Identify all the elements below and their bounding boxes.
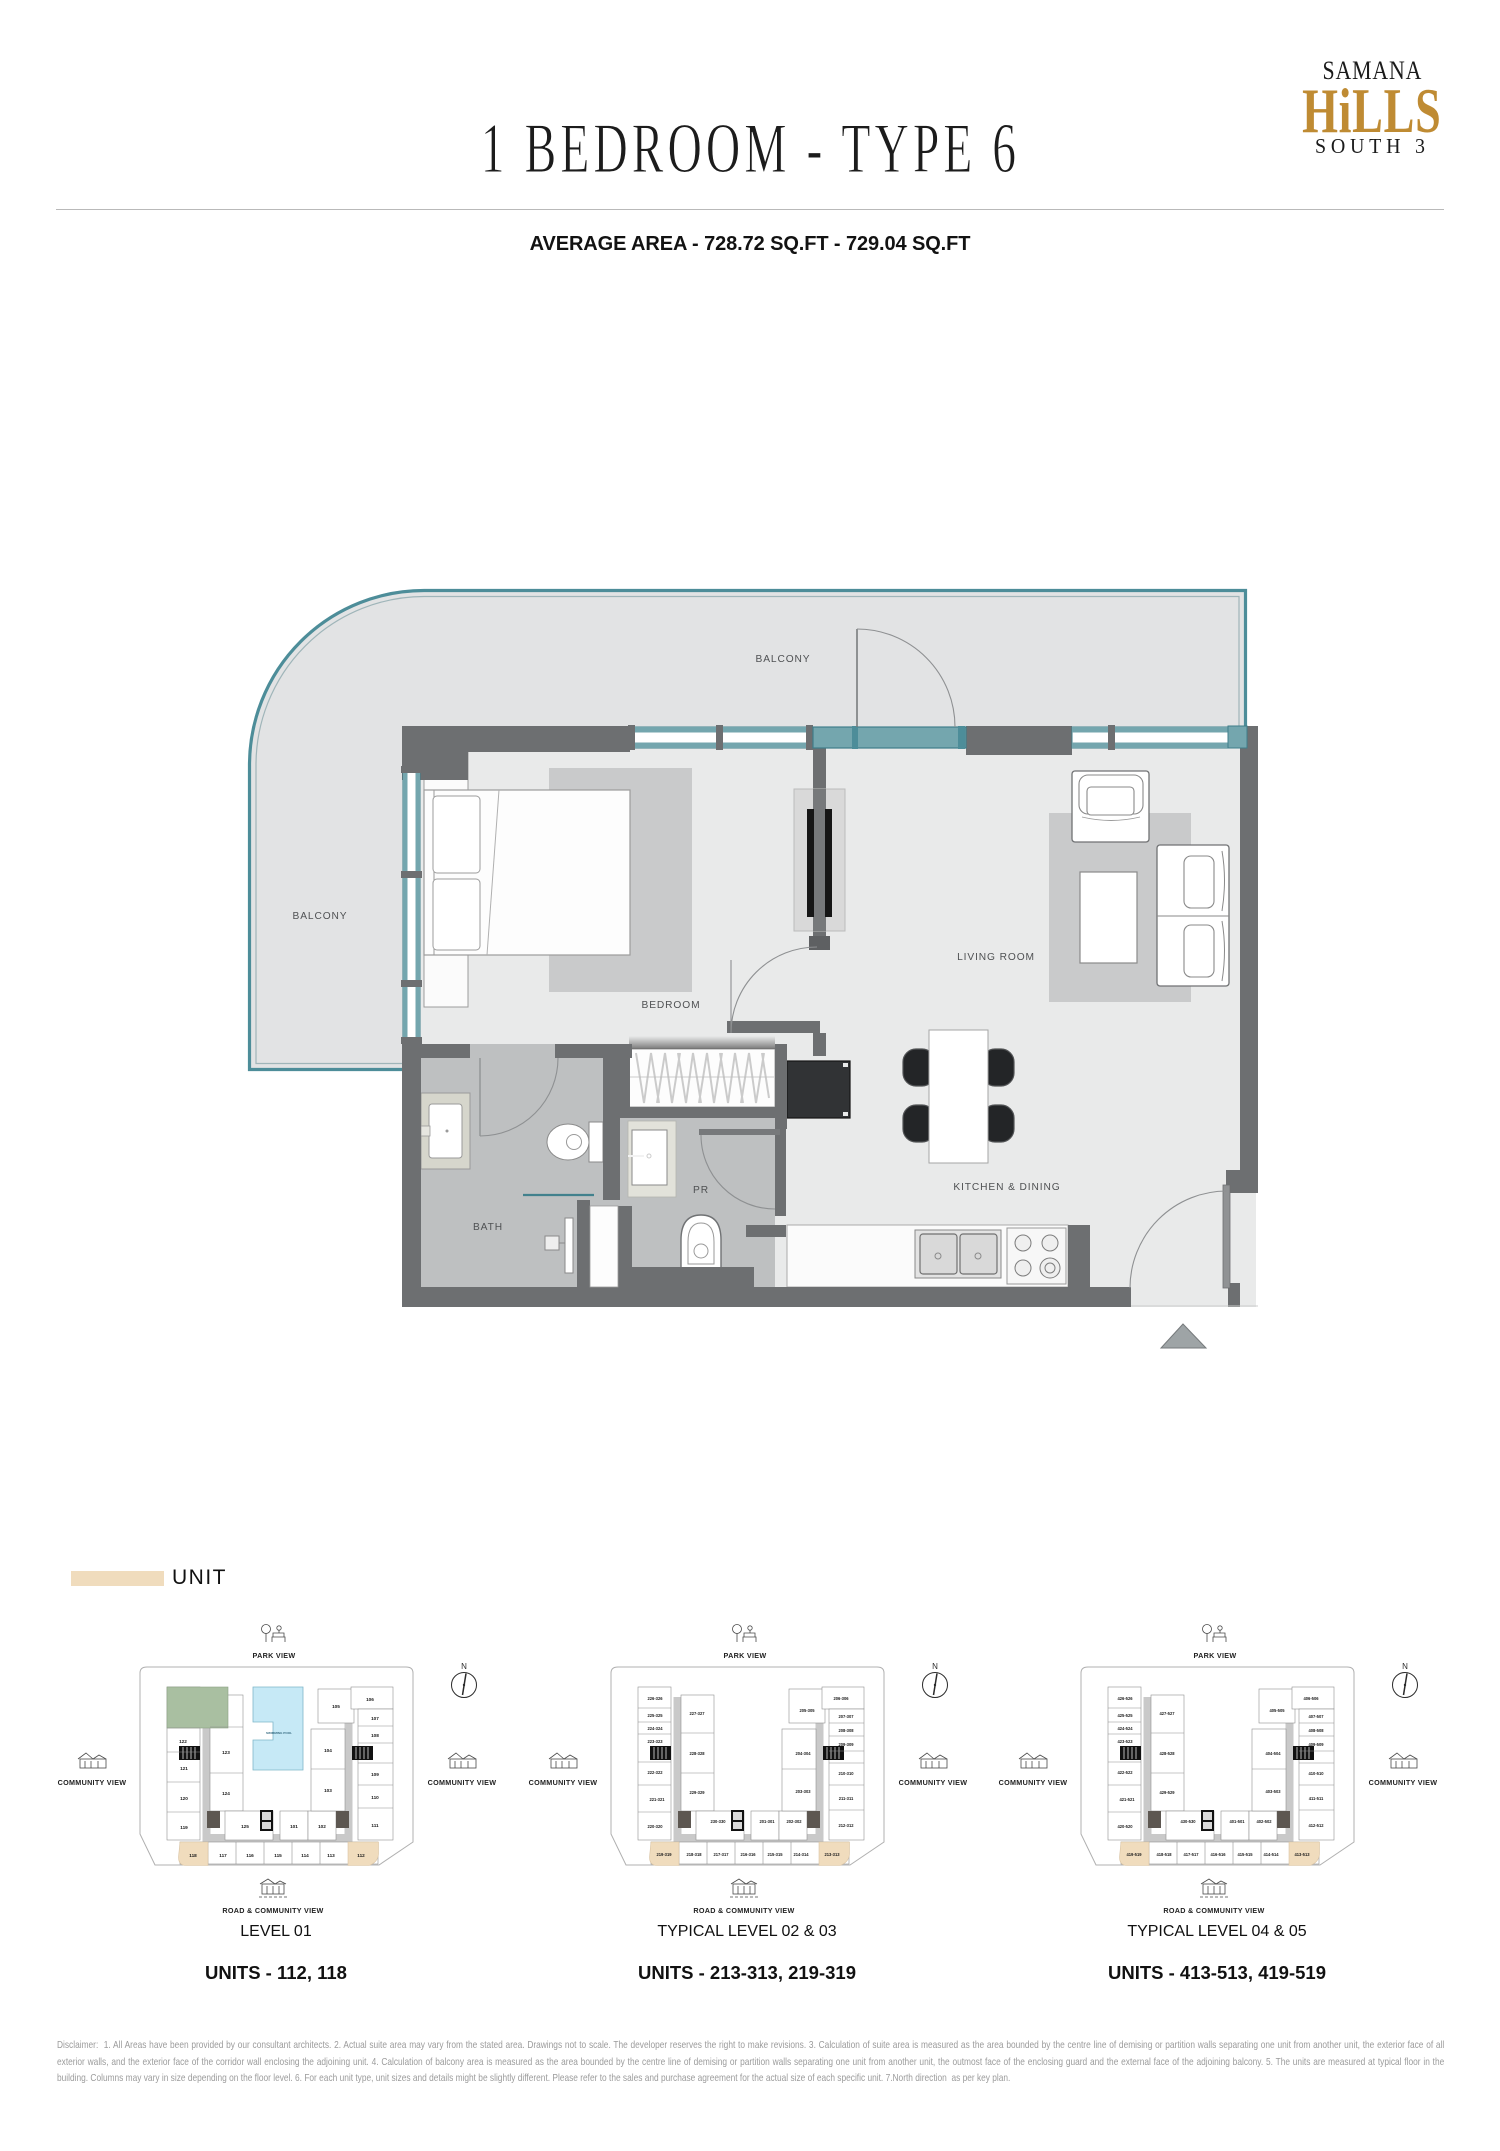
svg-text:109: 109 bbox=[371, 1772, 379, 1777]
svg-text:409-509: 409-509 bbox=[1308, 1742, 1324, 1747]
svg-text:115: 115 bbox=[274, 1853, 282, 1858]
svg-text:415-515: 415-515 bbox=[1237, 1852, 1253, 1857]
svg-text:108: 108 bbox=[371, 1733, 379, 1738]
svg-text:225-325: 225-325 bbox=[647, 1713, 663, 1718]
svg-text:125: 125 bbox=[241, 1824, 249, 1829]
svg-text:403-503: 403-503 bbox=[1265, 1789, 1281, 1794]
svg-text:223-323: 223-323 bbox=[647, 1739, 663, 1744]
svg-text:428-528: 428-528 bbox=[1159, 1751, 1175, 1756]
svg-text:429-529: 429-529 bbox=[1159, 1790, 1175, 1795]
svg-text:413-513: 413-513 bbox=[1294, 1852, 1310, 1857]
svg-text:426-526: 426-526 bbox=[1117, 1696, 1133, 1701]
svg-text:417-517: 417-517 bbox=[1183, 1852, 1199, 1857]
svg-text:419-519: 419-519 bbox=[1126, 1852, 1142, 1857]
svg-text:424-524: 424-524 bbox=[1117, 1726, 1133, 1731]
svg-text:427-527: 427-527 bbox=[1159, 1711, 1175, 1716]
svg-text:112: 112 bbox=[357, 1853, 365, 1858]
svg-text:124: 124 bbox=[222, 1791, 230, 1796]
svg-text:119: 119 bbox=[180, 1825, 188, 1830]
svg-text:KITCHEN & DINING: KITCHEN & DINING bbox=[953, 1182, 1060, 1193]
svg-text:BEDROOM: BEDROOM bbox=[642, 1000, 701, 1011]
svg-text:PR: PR bbox=[693, 1185, 709, 1196]
svg-text:406-506: 406-506 bbox=[1303, 1696, 1319, 1701]
svg-text:205-305: 205-305 bbox=[799, 1708, 815, 1713]
svg-text:106: 106 bbox=[366, 1697, 374, 1702]
svg-text:402-502: 402-502 bbox=[1256, 1819, 1272, 1824]
svg-text:114: 114 bbox=[301, 1853, 309, 1858]
svg-text:418-518: 418-518 bbox=[1156, 1852, 1172, 1857]
svg-text:226-326: 226-326 bbox=[647, 1696, 663, 1701]
svg-text:LIVING ROOM: LIVING ROOM bbox=[957, 952, 1035, 963]
svg-text:BALCONY: BALCONY bbox=[293, 911, 348, 922]
svg-text:113: 113 bbox=[327, 1853, 335, 1858]
svg-text:422-522: 422-522 bbox=[1117, 1770, 1133, 1775]
svg-text:118: 118 bbox=[189, 1853, 197, 1858]
svg-text:121: 121 bbox=[180, 1766, 188, 1771]
svg-text:408-508: 408-508 bbox=[1308, 1728, 1324, 1733]
svg-text:222-322: 222-322 bbox=[647, 1770, 663, 1775]
svg-text:416-516: 416-516 bbox=[1210, 1852, 1226, 1857]
svg-text:107: 107 bbox=[371, 1716, 379, 1721]
svg-text:410-510: 410-510 bbox=[1308, 1771, 1324, 1776]
svg-text:210-310: 210-310 bbox=[838, 1771, 854, 1776]
svg-text:430-530: 430-530 bbox=[1180, 1819, 1196, 1824]
svg-text:229-329: 229-329 bbox=[689, 1790, 705, 1795]
svg-text:423-523: 423-523 bbox=[1117, 1739, 1133, 1744]
svg-text:204-304: 204-304 bbox=[795, 1751, 811, 1756]
svg-text:105: 105 bbox=[332, 1704, 340, 1709]
svg-text:SWIMMING POOL: SWIMMING POOL bbox=[266, 1731, 292, 1735]
svg-text:122: 122 bbox=[179, 1739, 187, 1744]
svg-text:206-306: 206-306 bbox=[833, 1696, 849, 1701]
svg-text:211-311: 211-311 bbox=[839, 1796, 854, 1801]
svg-text:123: 123 bbox=[222, 1750, 230, 1755]
svg-text:BALCONY: BALCONY bbox=[756, 654, 811, 665]
svg-text:218-318: 218-318 bbox=[686, 1852, 702, 1857]
svg-text:221-321: 221-321 bbox=[649, 1797, 665, 1802]
svg-text:203-303: 203-303 bbox=[795, 1789, 811, 1794]
svg-text:101: 101 bbox=[290, 1824, 298, 1829]
svg-text:104: 104 bbox=[324, 1748, 332, 1753]
svg-text:224-324: 224-324 bbox=[647, 1726, 663, 1731]
svg-text:208-308: 208-308 bbox=[838, 1728, 854, 1733]
svg-text:420-520: 420-520 bbox=[1117, 1824, 1133, 1829]
svg-text:411-511: 411-511 bbox=[1309, 1796, 1324, 1801]
svg-text:212-312: 212-312 bbox=[838, 1823, 854, 1828]
svg-text:407-507: 407-507 bbox=[1308, 1714, 1324, 1719]
svg-text:103: 103 bbox=[324, 1788, 332, 1793]
svg-text:227-327: 227-327 bbox=[689, 1711, 705, 1716]
svg-text:404-504: 404-504 bbox=[1265, 1751, 1281, 1756]
svg-text:412-512: 412-512 bbox=[1308, 1823, 1324, 1828]
svg-text:414-514: 414-514 bbox=[1263, 1852, 1279, 1857]
svg-text:209-309: 209-309 bbox=[838, 1742, 854, 1747]
svg-text:405-505: 405-505 bbox=[1269, 1708, 1285, 1713]
svg-text:215-315: 215-315 bbox=[767, 1852, 783, 1857]
svg-text:207-307: 207-307 bbox=[838, 1714, 854, 1719]
svg-text:216-316: 216-316 bbox=[740, 1852, 756, 1857]
svg-text:201-301: 201-301 bbox=[759, 1819, 775, 1824]
svg-text:213-313: 213-313 bbox=[824, 1852, 840, 1857]
svg-text:110: 110 bbox=[371, 1795, 379, 1800]
svg-text:111: 111 bbox=[371, 1823, 379, 1828]
svg-text:120: 120 bbox=[180, 1796, 188, 1801]
svg-text:217-317: 217-317 bbox=[713, 1852, 729, 1857]
svg-text:220-320: 220-320 bbox=[647, 1824, 663, 1829]
svg-text:102: 102 bbox=[318, 1824, 326, 1829]
svg-text:117: 117 bbox=[219, 1853, 227, 1858]
svg-text:219-319: 219-319 bbox=[656, 1852, 672, 1857]
svg-text:214-314: 214-314 bbox=[793, 1852, 809, 1857]
svg-text:401-501: 401-501 bbox=[1229, 1819, 1245, 1824]
svg-text:230-330: 230-330 bbox=[710, 1819, 726, 1824]
svg-text:116: 116 bbox=[246, 1853, 254, 1858]
svg-text:425-525: 425-525 bbox=[1117, 1713, 1133, 1718]
svg-text:421-521: 421-521 bbox=[1119, 1797, 1135, 1802]
svg-text:202-302: 202-302 bbox=[786, 1819, 802, 1824]
svg-text:BATH: BATH bbox=[473, 1222, 503, 1233]
svg-text:228-328: 228-328 bbox=[689, 1751, 705, 1756]
